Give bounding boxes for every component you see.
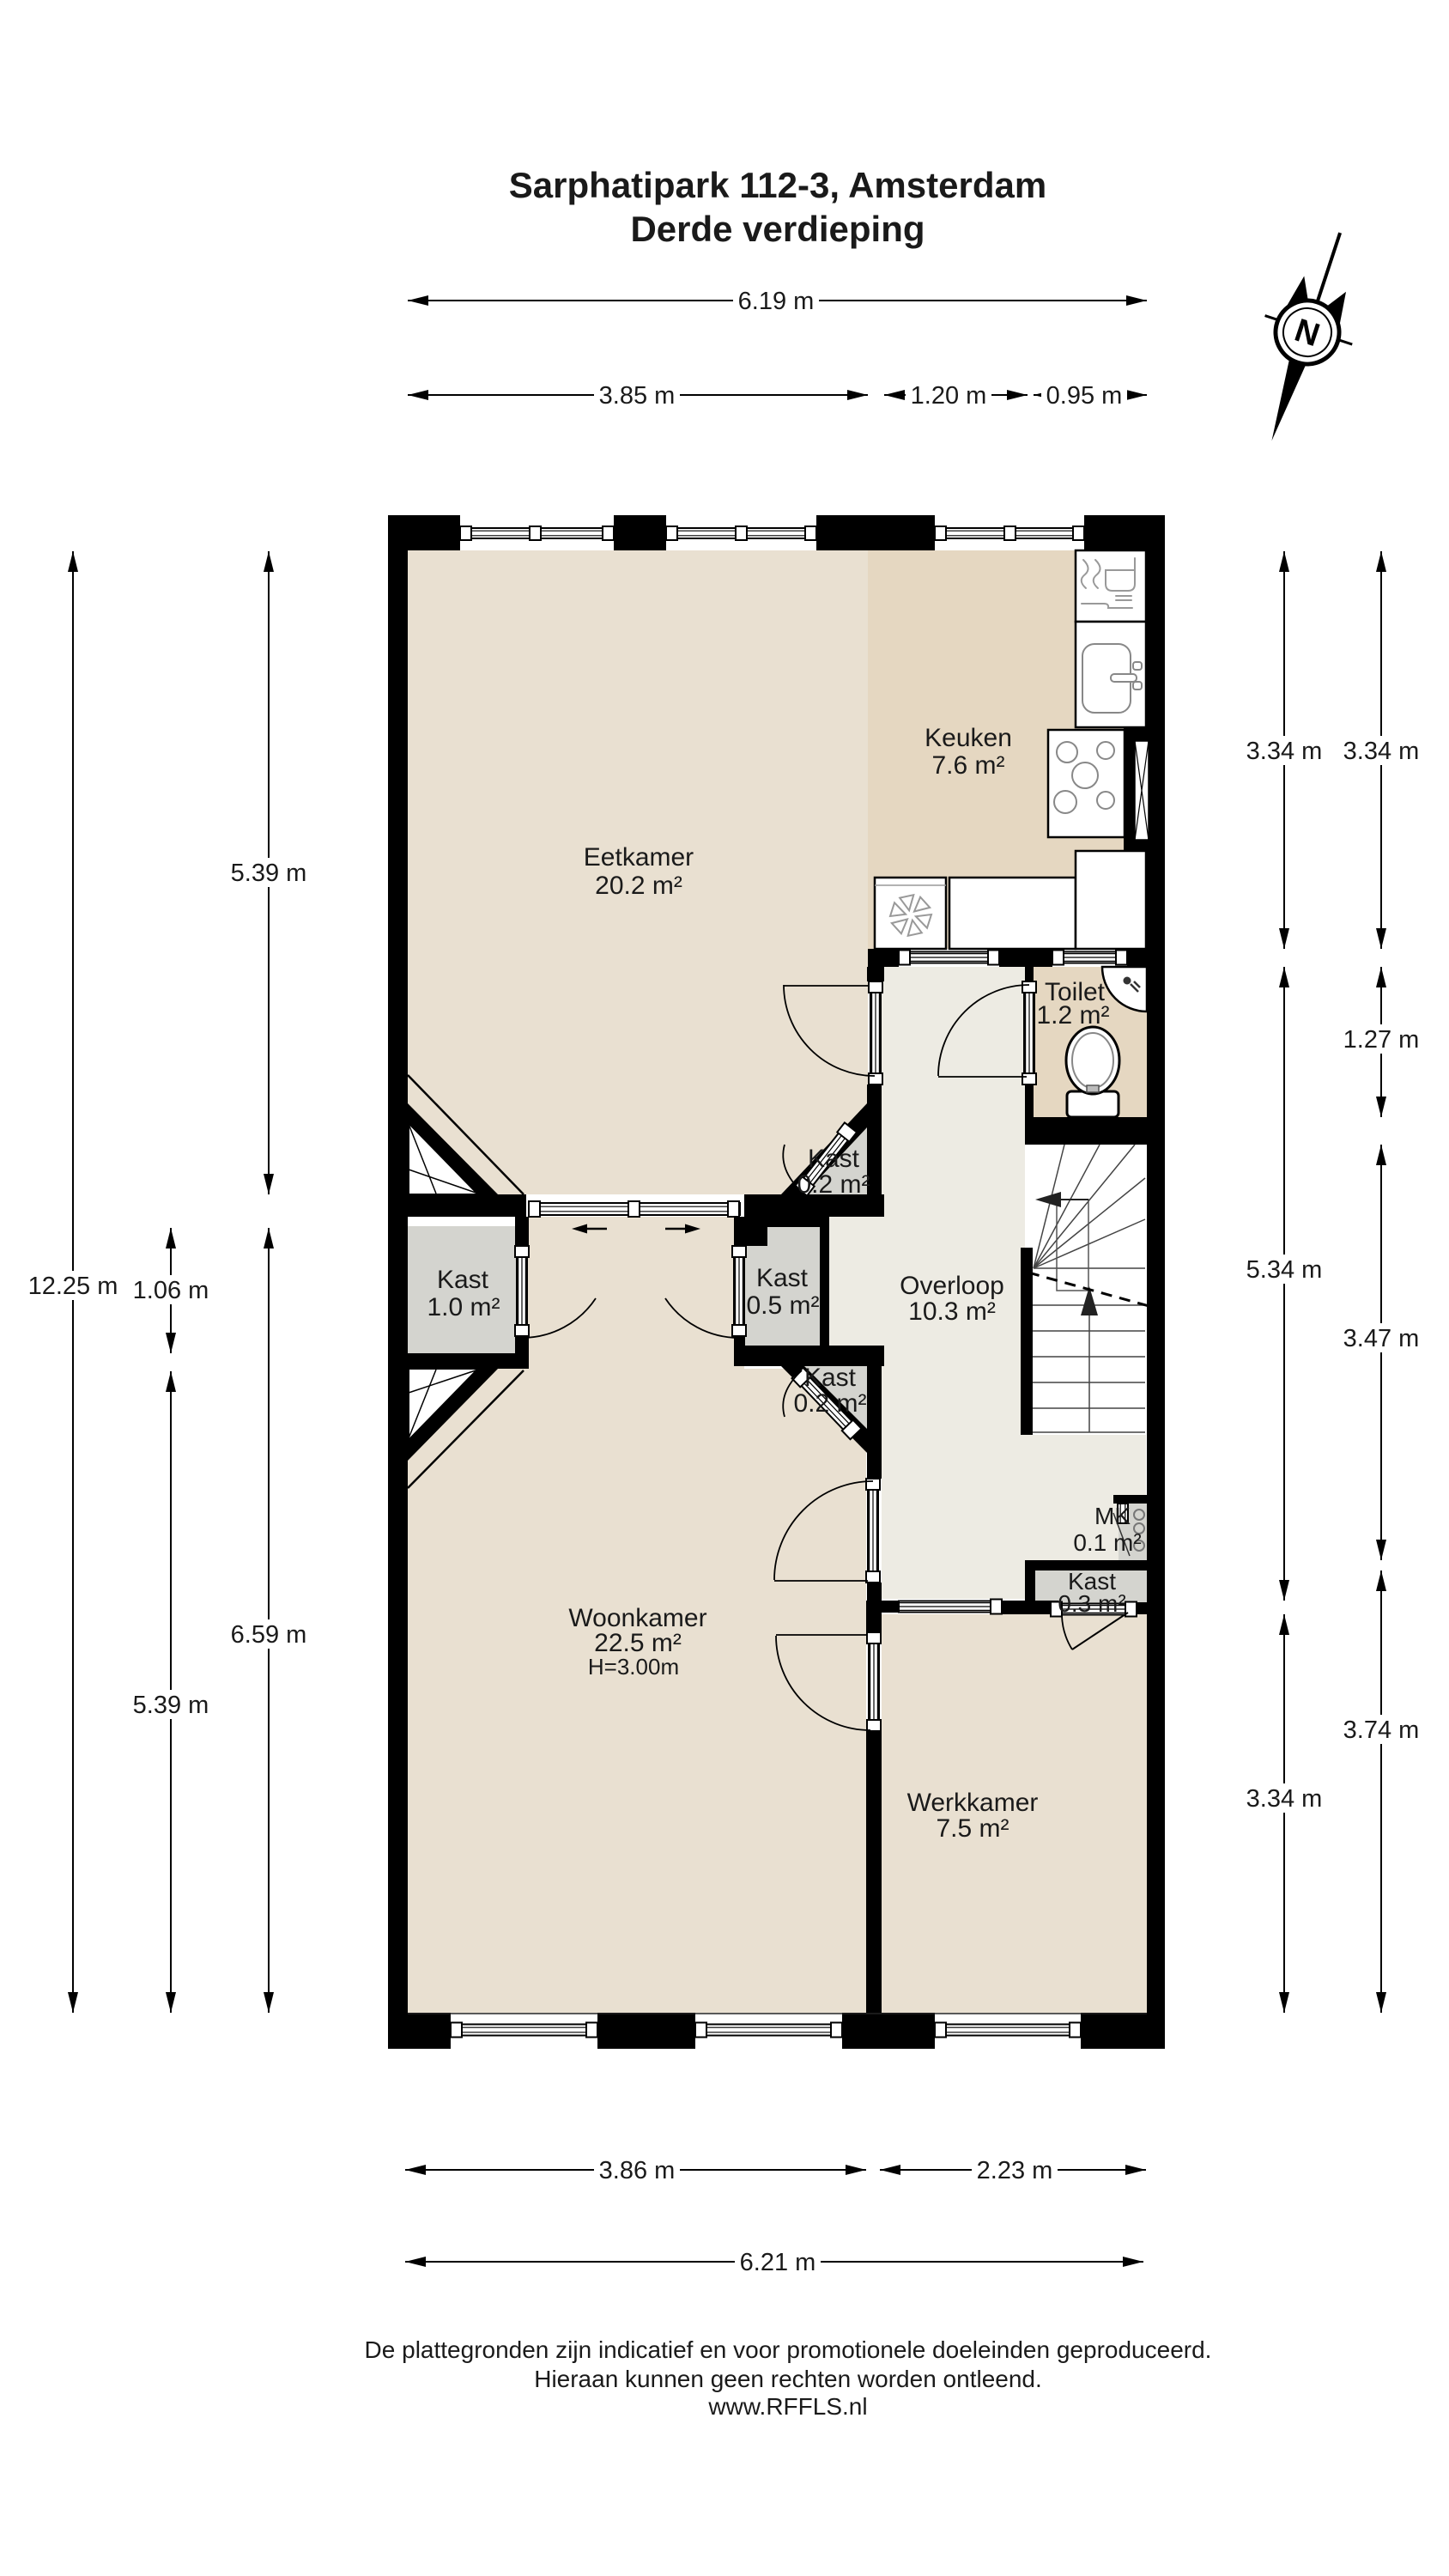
- svg-text:6.19 m: 6.19 m: [738, 288, 815, 315]
- svg-text:1.2 m²: 1.2 m²: [1036, 1001, 1109, 1030]
- svg-text:Kast: Kast: [437, 1266, 489, 1294]
- svg-text:20.2 m²: 20.2 m²: [595, 872, 682, 900]
- svg-text:Overloop: Overloop: [900, 1272, 1004, 1300]
- svg-text:12.25 m: 12.25 m: [28, 1273, 118, 1300]
- svg-text:0.95 m: 0.95 m: [1046, 382, 1123, 410]
- svg-text:0.2 m²: 0.2 m²: [797, 1170, 870, 1199]
- svg-text:Eetkamer: Eetkamer: [584, 843, 694, 872]
- svg-text:Hieraan kunnen geen rechten wo: Hieraan kunnen geen rechten worden ontle…: [534, 2366, 1042, 2392]
- svg-text:1.06 m: 1.06 m: [133, 1277, 209, 1304]
- svg-text:3.86 m: 3.86 m: [599, 2157, 676, 2184]
- svg-text:3.74 m: 3.74 m: [1343, 1716, 1420, 1744]
- svg-text:5.34 m: 5.34 m: [1246, 1256, 1323, 1284]
- svg-text:0.3 m²: 0.3 m²: [1058, 1590, 1125, 1617]
- svg-text:1.20 m: 1.20 m: [911, 382, 987, 410]
- svg-text:7.6 m²: 7.6 m²: [931, 751, 1004, 780]
- svg-text:MK: MK: [1094, 1503, 1131, 1529]
- svg-text:www.RFFLS.nl: www.RFFLS.nl: [707, 2393, 867, 2420]
- svg-text:3.34 m: 3.34 m: [1246, 738, 1323, 765]
- svg-text:6.59 m: 6.59 m: [231, 1621, 307, 1649]
- svg-text:Kast: Kast: [804, 1364, 857, 1392]
- svg-text:7.5 m²: 7.5 m²: [936, 1814, 1009, 1843]
- svg-text:Werkkamer: Werkkamer: [907, 1789, 1039, 1817]
- svg-text:Kast: Kast: [756, 1264, 809, 1292]
- svg-text:0.2 m²: 0.2 m²: [793, 1389, 866, 1418]
- svg-text:1.0 m²: 1.0 m²: [427, 1293, 500, 1321]
- svg-text:0.5 m²: 0.5 m²: [746, 1291, 819, 1320]
- svg-text:2.23 m: 2.23 m: [977, 2157, 1053, 2184]
- svg-text:Derde verdieping: Derde verdieping: [630, 209, 925, 249]
- svg-text:3.34 m: 3.34 m: [1246, 1785, 1323, 1813]
- svg-text:De plattegronden zijn indicati: De plattegronden zijn indicatief en voor…: [365, 2336, 1212, 2363]
- svg-text:Keuken: Keuken: [925, 724, 1012, 752]
- svg-text:1.27 m: 1.27 m: [1343, 1026, 1420, 1054]
- svg-text:3.47 m: 3.47 m: [1343, 1325, 1420, 1352]
- svg-text:5.39 m: 5.39 m: [133, 1692, 209, 1719]
- svg-text:5.39 m: 5.39 m: [231, 860, 307, 887]
- svg-text:6.21 m: 6.21 m: [740, 2249, 816, 2276]
- svg-text:Sarphatipark 112-3, Amsterdam: Sarphatipark 112-3, Amsterdam: [509, 165, 1046, 205]
- svg-text:H=3.00m: H=3.00m: [588, 1654, 679, 1680]
- svg-text:3.85 m: 3.85 m: [599, 382, 676, 410]
- svg-text:3.34 m: 3.34 m: [1343, 738, 1420, 765]
- svg-text:Kast: Kast: [808, 1145, 860, 1173]
- svg-text:0.1 m²: 0.1 m²: [1073, 1529, 1141, 1556]
- svg-text:10.3 m²: 10.3 m²: [908, 1297, 996, 1326]
